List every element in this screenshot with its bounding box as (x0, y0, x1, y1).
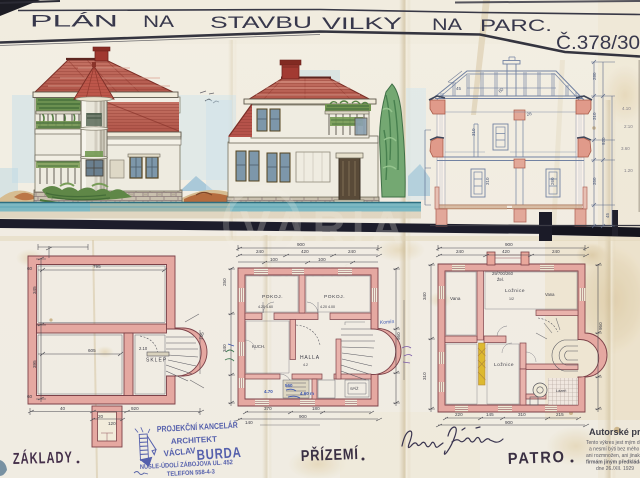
svg-text:370: 370 (264, 406, 272, 411)
svg-text:180: 180 (312, 406, 320, 411)
svg-text:4.70: 4.70 (264, 389, 273, 394)
svg-text:STAVBU: STAVBU (210, 13, 312, 32)
svg-text:560: 560 (285, 383, 293, 388)
svg-text:40: 40 (60, 406, 66, 411)
svg-text:920: 920 (131, 406, 139, 411)
svg-text:605: 605 (88, 348, 96, 353)
svg-text:60: 60 (27, 394, 33, 399)
svg-text:900: 900 (505, 420, 513, 425)
svg-text:145: 145 (486, 412, 494, 417)
svg-text:420: 420 (502, 249, 510, 254)
svg-text:VARIA: VARIA (240, 201, 410, 253)
svg-text:SKLEP: SKLEP (146, 358, 167, 364)
svg-text:795: 795 (93, 264, 101, 269)
svg-text:Vana: Vana (545, 292, 555, 297)
svg-text:NA: NA (432, 15, 463, 34)
svg-text:Tento výkres jest mým dušev: Tento výkres jest mým dušev (586, 440, 640, 446)
svg-text:4.60 m: 4.60 m (300, 391, 314, 396)
svg-text:280: 280 (592, 72, 597, 80)
svg-text:firmám jiným předkládán neb: firmám jiným předkládán neb (586, 460, 640, 466)
svg-text:4.20 4.00: 4.20 4.00 (320, 305, 335, 309)
svg-text:900: 900 (299, 414, 307, 419)
svg-text:Komín: Komín (380, 319, 395, 326)
svg-text:900: 900 (297, 242, 305, 247)
svg-text:920: 920 (601, 137, 606, 145)
svg-text:45: 45 (605, 212, 610, 218)
svg-text:250: 250 (222, 278, 227, 286)
svg-text:PATRO: PATRO (508, 449, 567, 468)
svg-text:Žel.: Žel. (497, 277, 504, 282)
svg-text:215: 215 (556, 412, 564, 417)
svg-text:Autorské právo vyhr: Autorské právo vyhr (589, 427, 640, 437)
svg-text:310: 310 (518, 412, 526, 417)
svg-text:POKOJ.: POKOJ. (324, 294, 345, 300)
svg-text:120: 120 (108, 421, 116, 426)
svg-text:345: 345 (32, 286, 37, 294)
svg-text:POKOJ.: POKOJ. (262, 294, 283, 300)
svg-text:NA: NA (143, 12, 175, 31)
svg-text:310: 310 (485, 177, 490, 185)
svg-text:60: 60 (27, 266, 33, 271)
svg-text:220: 220 (455, 412, 463, 417)
svg-text:Ložnice: Ložnice (494, 362, 514, 368)
svg-text:240: 240 (552, 249, 560, 254)
svg-text:310: 310 (422, 372, 427, 380)
svg-text:310: 310 (592, 112, 597, 120)
svg-text:PLÁN: PLÁN (30, 12, 118, 31)
svg-text:Vana: Vana (450, 296, 461, 301)
svg-text:340: 340 (422, 292, 427, 300)
svg-text:4.20 4.60: 4.20 4.60 (258, 305, 273, 309)
svg-text:310: 310 (471, 128, 476, 136)
svg-text:dne 26./XII. 1929: dne 26./XII. 1929 (596, 466, 634, 472)
svg-text:PŘÍZEMÍ: PŘÍZEMÍ (301, 445, 360, 465)
svg-text:240: 240 (256, 249, 264, 254)
svg-text:4.2: 4.2 (303, 363, 308, 367)
svg-text:Ložnice: Ložnice (505, 288, 525, 294)
svg-text:45: 45 (456, 86, 462, 91)
svg-text:SPÍŽ: SPÍŽ (350, 386, 359, 391)
svg-text:240: 240 (348, 249, 356, 254)
svg-text:395: 395 (32, 360, 37, 368)
svg-text:ZÁKLADY: ZÁKLADY (13, 447, 73, 468)
svg-text:a nesmí býti bez mého svo: a nesmí býti bez mého svo (589, 447, 640, 453)
svg-text:350: 350 (592, 177, 597, 185)
svg-text:20: 20 (98, 414, 104, 419)
svg-text:240: 240 (456, 249, 464, 254)
svg-text:29/700/260: 29/700/260 (492, 271, 514, 276)
svg-text:950: 950 (396, 332, 401, 340)
svg-text:340: 340 (222, 344, 227, 352)
svg-text:420: 420 (301, 249, 309, 254)
svg-text:ani rozmnožen, ani jinak po: ani rozmnožen, ani jinak po (586, 453, 640, 459)
svg-text:Lázeň: Lázeň (556, 389, 566, 393)
svg-text:HALLA: HALLA (300, 355, 320, 361)
svg-text:PARC.: PARC. (480, 16, 552, 35)
svg-text:VILKY: VILKY (322, 14, 402, 33)
svg-text:KUCH.: KUCH. (252, 344, 265, 349)
svg-text:2.10: 2.10 (139, 346, 148, 351)
svg-text:100: 100 (318, 257, 326, 262)
svg-text:1/2: 1/2 (509, 297, 514, 301)
svg-text:260: 260 (550, 177, 555, 185)
svg-text:900: 900 (505, 242, 513, 247)
svg-text:Č.378/30: Č.378/30 (556, 32, 640, 54)
svg-text:100: 100 (270, 257, 278, 262)
svg-text:140: 140 (245, 420, 253, 425)
svg-text:950: 950 (598, 322, 603, 330)
